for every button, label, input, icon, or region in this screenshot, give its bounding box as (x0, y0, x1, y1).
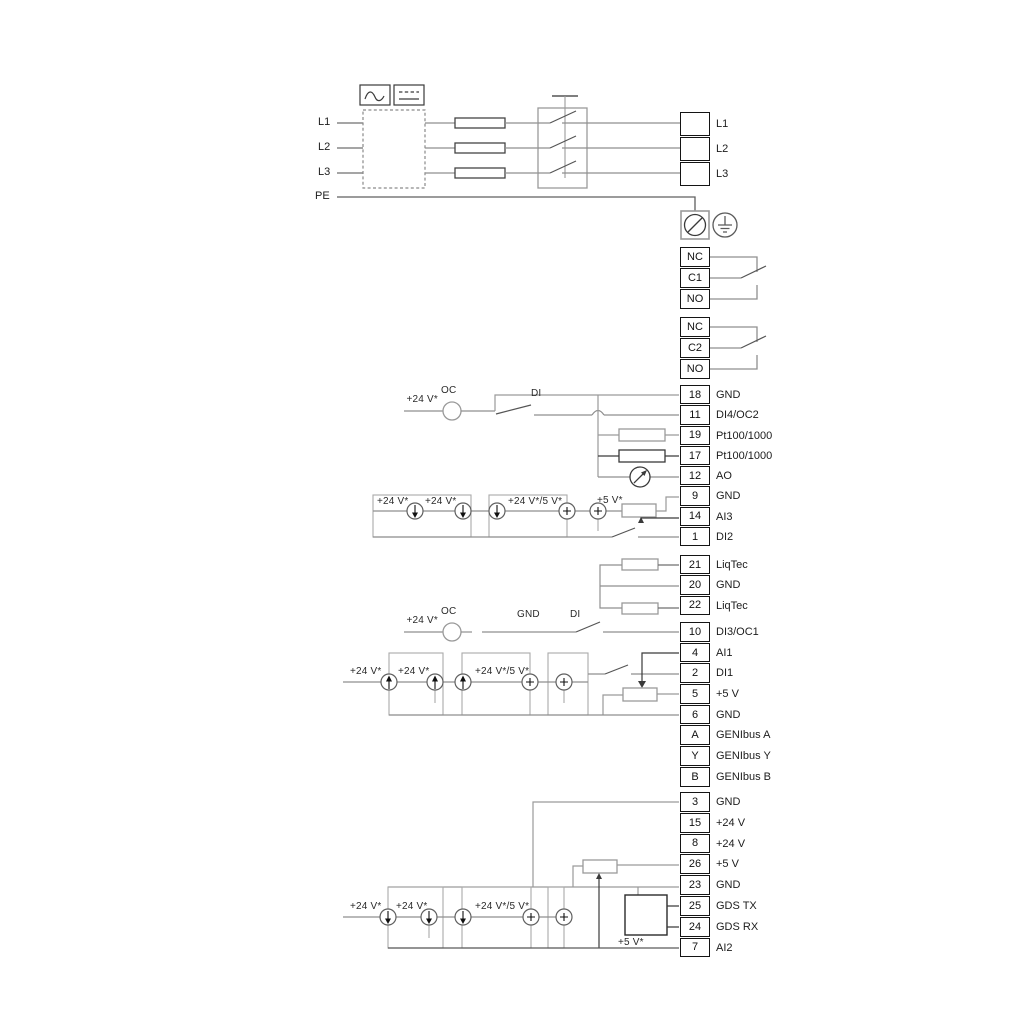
rfi-filter-box (363, 110, 425, 188)
label-5v: +5 V* (597, 495, 623, 506)
fuse-l2 (455, 143, 505, 153)
terminal-label: DI4/OC2 (716, 405, 772, 425)
earth-icon (713, 213, 737, 237)
ai1-circuit (343, 653, 679, 715)
terminal-label: GND (716, 385, 772, 405)
liqtec-sensor-resistor (622, 559, 658, 570)
terminal-10: 10 (680, 622, 710, 642)
terminal-label: GENIbus Y (716, 746, 771, 767)
gds-module-box (625, 895, 667, 935)
label-di: DI (531, 388, 541, 399)
di3-switch-blade (576, 622, 600, 632)
terminal-label: L1 (716, 112, 728, 137)
liqtec-sensor-resistor (622, 603, 658, 614)
terminal-18: 18 (680, 385, 710, 404)
terminal-label: LiqTec (716, 596, 748, 616)
terminal-nc: NC (680, 247, 710, 267)
terminal-3: 3 (680, 792, 710, 812)
open-collector-icon (443, 402, 461, 420)
option-bracket (462, 653, 530, 715)
label-di: DI (570, 609, 580, 620)
terminal-label: LiqTec (716, 555, 748, 575)
io3-circuit (343, 802, 679, 948)
dc-symbol-box (394, 85, 424, 105)
terminal-8: 8 (680, 834, 710, 854)
terminal-7: 7 (680, 938, 710, 958)
terminal-block-io3: 3 15 8 26 23 25 24 7 (680, 792, 710, 958)
terminal-block-power (680, 112, 710, 187)
terminal-labels-power: L1 L2 L3 (716, 112, 728, 187)
label-24v: +24 V* (398, 666, 430, 677)
terminal-label: GND (716, 875, 758, 896)
terminal-no: NO (680, 289, 710, 309)
potentiometer (622, 504, 656, 517)
di-switch-blade (496, 405, 531, 414)
terminal-label: AI3 (716, 507, 772, 527)
terminal-6: 6 (680, 705, 710, 725)
terminal-labels-io2: DI3/OC1 AI1 DI1 +5 V GND GENIbus A GENIb… (716, 622, 771, 788)
input-label-l2: L2 (318, 141, 330, 153)
terminal-l1 (680, 112, 710, 136)
label-oc: OC (441, 606, 456, 617)
terminal-labels-liqtec: LiqTec GND LiqTec (716, 555, 748, 616)
terminal-label: +5 V (716, 854, 758, 875)
terminal-block-io1: 18 11 19 17 12 9 14 1 (680, 385, 710, 547)
pe-wire (337, 197, 695, 211)
di1-switch-blade (605, 665, 628, 674)
terminal-label: DI1 (716, 663, 771, 684)
relay2-contact (710, 327, 766, 369)
terminal-label: +5 V (716, 684, 771, 705)
terminal-25: 25 (680, 896, 710, 916)
label-24v-5v: +24 V*/5 V* (475, 901, 529, 912)
label-oc: OC (441, 385, 456, 396)
pt100-resistor-2 (619, 450, 665, 462)
current-source-icon (455, 909, 471, 925)
terminal-label: Pt100/1000 (716, 446, 772, 466)
wiper-arrow (596, 873, 602, 879)
wiring-layer (0, 0, 1024, 1024)
terminal-label: GND (716, 705, 771, 726)
liqtec-circuit (600, 559, 679, 614)
label-24v-5v: +24 V*/5 V* (508, 496, 562, 507)
label-24v: +24 V* (396, 901, 428, 912)
input-label-l3: L3 (318, 166, 330, 178)
terminal-5: 5 (680, 684, 710, 704)
potentiometer (623, 688, 657, 701)
screw-terminal-icon (681, 211, 709, 239)
analog-output-meter-icon (630, 467, 650, 487)
terminal-21: 21 (680, 555, 710, 574)
terminal-label: AI1 (716, 643, 771, 664)
current-source-icon (407, 503, 423, 519)
label-24v: +24 V* (402, 615, 438, 626)
label-24v: +24 V* (350, 901, 382, 912)
open-collector-icon (443, 623, 461, 641)
terminal-label: +24 V (716, 813, 758, 834)
label-24v: +24 V* (425, 496, 457, 507)
terminal-14: 14 (680, 507, 710, 526)
input-label-pe: PE (315, 190, 330, 202)
terminal-l2 (680, 137, 710, 161)
terminal-label: GDS TX (716, 896, 758, 917)
relay1-contact (710, 257, 766, 299)
terminal-1: 1 (680, 527, 710, 546)
current-source-icon (455, 674, 471, 690)
terminal-label: GND (716, 575, 748, 595)
terminal-b: B (680, 767, 710, 787)
label-5v: +5 V* (618, 937, 644, 948)
wiring-diagram: L1 L2 L3 PE L1 L2 L3 NC C1 NO NC C2 NO 1… (0, 0, 1024, 1024)
ac-wave-icon (365, 92, 384, 101)
terminal-label: GENIbus A (716, 725, 771, 746)
terminal-nc: NC (680, 317, 710, 337)
terminal-label: GND (716, 792, 758, 813)
terminal-label: L2 (716, 137, 728, 162)
terminal-label: DI3/OC1 (716, 622, 771, 643)
terminal-block-liqtec: 21 20 22 (680, 555, 710, 616)
terminal-9: 9 (680, 486, 710, 505)
terminal-17: 17 (680, 446, 710, 465)
terminal-12: 12 (680, 466, 710, 485)
terminal-22: 22 (680, 596, 710, 615)
terminal-4: 4 (680, 643, 710, 663)
terminal-label: GENIbus B (716, 767, 771, 788)
terminal-block-relay1: NC C1 NO (680, 247, 710, 310)
terminal-20: 20 (680, 575, 710, 594)
label-24v: +24 V* (402, 394, 438, 405)
terminal-15: 15 (680, 813, 710, 833)
input-label-l1: L1 (318, 116, 330, 128)
terminal-c2: C2 (680, 338, 710, 358)
current-source-icon (381, 674, 397, 690)
terminal-26: 26 (680, 854, 710, 874)
terminal-label: DI2 (716, 527, 772, 547)
terminal-l3 (680, 162, 710, 186)
current-source-icon (455, 503, 471, 519)
terminal-23: 23 (680, 875, 710, 895)
terminal-2: 2 (680, 663, 710, 683)
io1-circuit (404, 395, 679, 487)
terminal-24: 24 (680, 917, 710, 937)
terminal-19: 19 (680, 426, 710, 445)
label-24v: +24 V* (377, 496, 409, 507)
terminal-labels-io1: GND DI4/OC2 Pt100/1000 Pt100/1000 AO GND… (716, 385, 772, 547)
current-source-icon (380, 909, 396, 925)
fuse-l3 (455, 168, 505, 178)
terminal-label: AO (716, 466, 772, 486)
voltage-source-icon (556, 674, 572, 690)
terminal-block-relay2: NC C2 NO (680, 317, 710, 380)
terminal-label: L3 (716, 162, 728, 187)
label-24v: +24 V* (350, 666, 382, 677)
fuse-l1 (455, 118, 505, 128)
terminal-labels-io3: GND +24 V +24 V +5 V GND GDS TX GDS RX A… (716, 792, 758, 958)
ac-symbol-box (360, 85, 390, 105)
power-section (337, 85, 737, 239)
terminal-no: NO (680, 359, 710, 379)
io2-di3-circuit (404, 622, 679, 641)
terminal-c1: C1 (680, 268, 710, 288)
label-gnd: GND (517, 609, 540, 620)
terminal-block-io2: 10 4 2 5 6 A Y B (680, 622, 710, 788)
terminal-label: GND (716, 486, 772, 506)
potentiometer (583, 860, 617, 873)
current-source-icon (489, 503, 505, 519)
terminal-label: GDS RX (716, 917, 758, 938)
terminal-label: +24 V (716, 834, 758, 855)
di2-switch-blade (612, 528, 635, 537)
terminal-a: A (680, 725, 710, 745)
main-switch (538, 96, 680, 188)
pt100-resistor-1 (619, 429, 665, 441)
terminal-11: 11 (680, 405, 710, 424)
label-24v-5v: +24 V*/5 V* (475, 666, 529, 677)
terminal-label: AI2 (716, 938, 758, 959)
terminal-label: Pt100/1000 (716, 426, 772, 446)
terminal-y: Y (680, 746, 710, 766)
wiper-arrow (638, 681, 646, 688)
voltage-source-icon (556, 909, 572, 925)
